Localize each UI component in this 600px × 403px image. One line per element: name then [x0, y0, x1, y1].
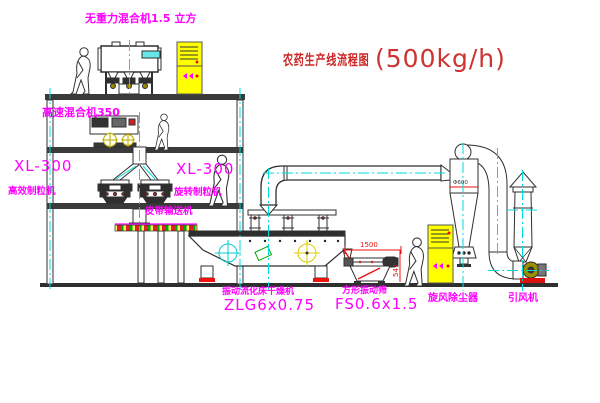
granulator-right: [138, 180, 172, 203]
cyclone-separator: [450, 144, 517, 279]
label-dryer-model: ZLG6x0.75: [224, 298, 315, 313]
label-belt-conveyor: 皮带输送机: [145, 207, 193, 217]
label-granulator-right-name: 旋转制粒机: [174, 188, 222, 198]
control-cabinet-right: [428, 225, 453, 283]
label-granulator-left-model: XL-300: [14, 159, 72, 174]
title-capacity: (500kg/h): [375, 44, 506, 73]
high-speed-mixer: [90, 116, 138, 148]
fluid-bed-dryer: [189, 210, 352, 282]
label-fan: 引风机: [508, 294, 538, 304]
dim-screen-height: 541: [393, 264, 400, 277]
flow-diagram-canvas: 农药生产线流程图 (500kg/h) 无重力混合机1.5 立方 高速混合机350…: [0, 0, 600, 403]
dim-cyclone-diameter: Φ600: [453, 181, 468, 187]
label-granulator-right-model: XL-300: [176, 162, 234, 177]
granulator-left: [98, 180, 132, 203]
label-cyclone: 旋风除尘器: [428, 294, 478, 304]
dim-screen-length: 1500: [360, 242, 378, 249]
title-text: 农药生产线流程图: [283, 50, 369, 70]
label-screen-model: FS0.6x1.5: [335, 297, 418, 312]
label-granulator-left-name: 高效制粒机: [8, 187, 56, 197]
worker-floor2: [154, 114, 169, 150]
label-high-speed-mixer: 高速混合机350: [42, 107, 120, 118]
diagram-title: 农药生产线流程图 (500kg/h): [283, 44, 506, 73]
label-gravity-mixer: 无重力混合机1.5 立方: [85, 13, 196, 24]
worker-ground: [403, 238, 423, 286]
ground-line: [40, 283, 558, 287]
control-cabinet-top: [177, 42, 202, 94]
worker-roof: [71, 48, 90, 94]
induced-draft-fan: [513, 261, 546, 283]
